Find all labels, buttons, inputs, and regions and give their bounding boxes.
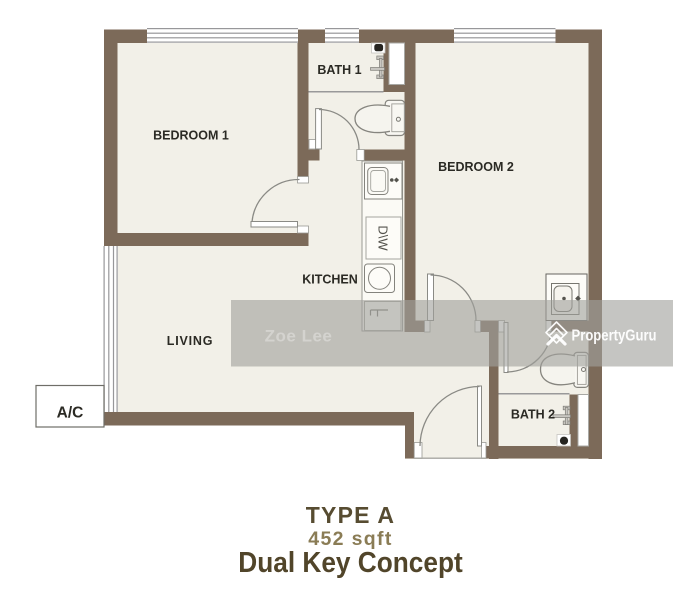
- svg-text:A/C: A/C: [57, 405, 84, 422]
- svg-text:Zoe Lee: Zoe Lee: [265, 327, 333, 346]
- svg-text:BATH 2: BATH 2: [511, 408, 555, 422]
- svg-text:BEDROOM 2: BEDROOM 2: [438, 160, 514, 174]
- svg-text:TYPE A: TYPE A: [306, 502, 395, 528]
- svg-text:BEDROOM 1: BEDROOM 1: [153, 129, 229, 143]
- svg-text:D\W: D\W: [376, 225, 391, 251]
- svg-text:LIVING: LIVING: [167, 334, 213, 348]
- svg-text:KITCHEN: KITCHEN: [302, 273, 358, 287]
- svg-text:Dual Key Concept: Dual Key Concept: [238, 546, 462, 579]
- svg-text:BATH 1: BATH 1: [317, 63, 361, 77]
- svg-text:PropertyGuru: PropertyGuru: [572, 328, 657, 345]
